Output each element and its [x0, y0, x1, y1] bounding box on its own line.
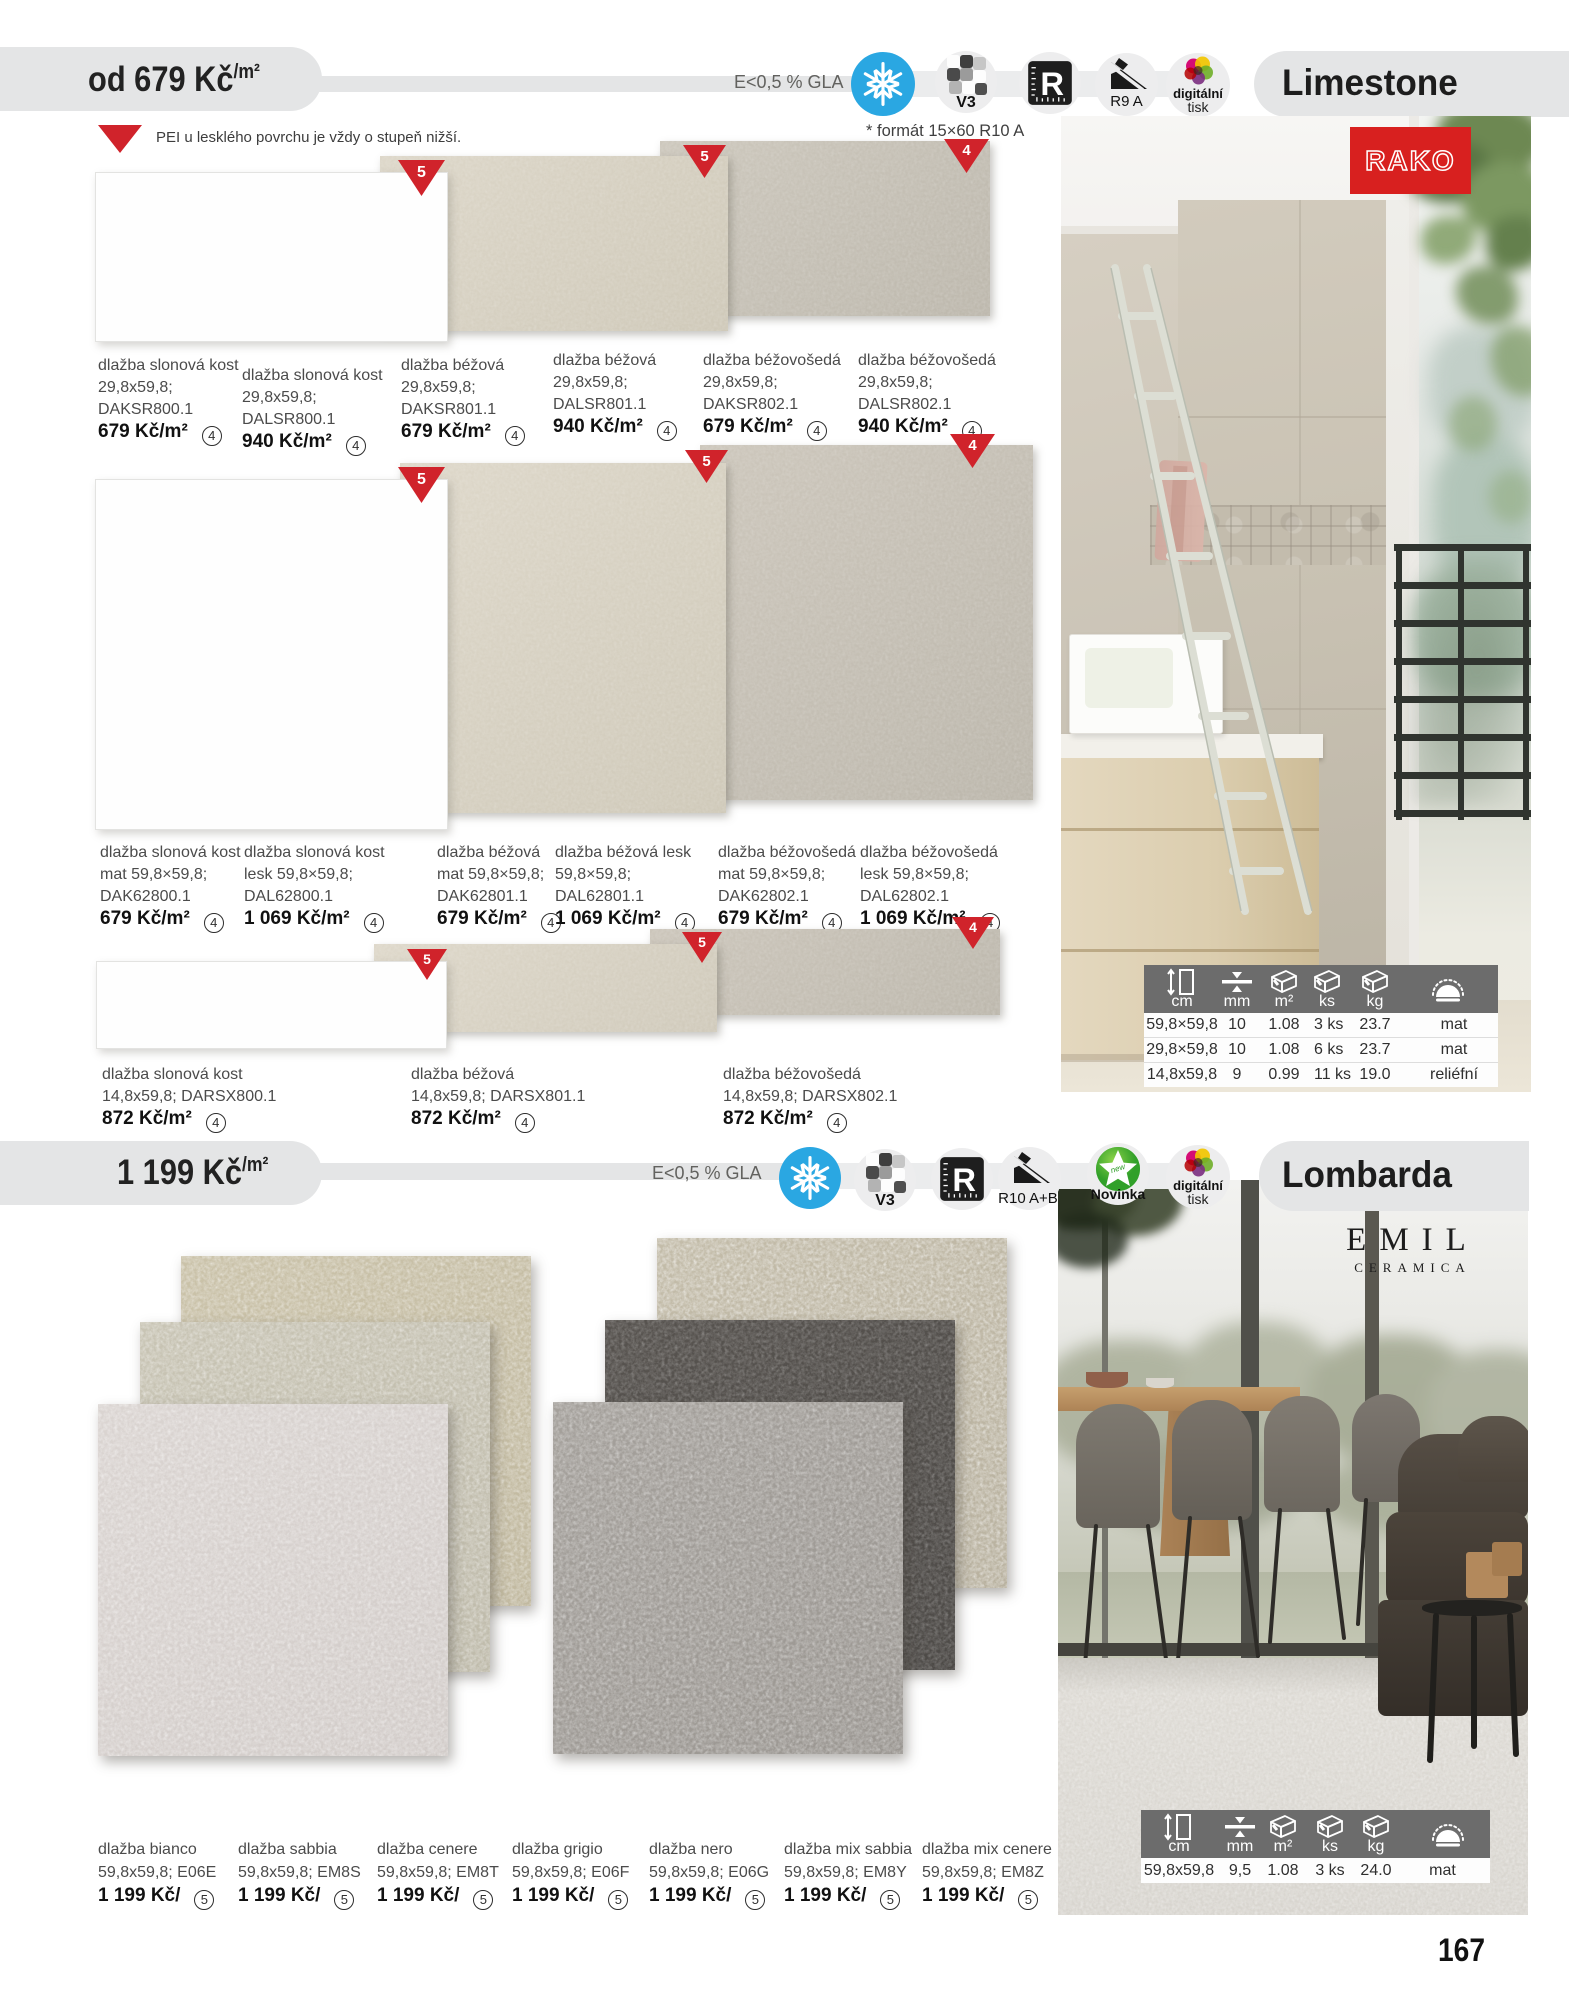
svg-text:4: 4 — [969, 919, 977, 935]
svg-text:5: 5 — [698, 934, 706, 950]
svg-text:5: 5 — [423, 951, 431, 967]
svg-text:R: R — [1040, 65, 1064, 102]
svg-text:5: 5 — [702, 453, 710, 470]
svg-text:5: 5 — [417, 471, 426, 488]
svg-text:4: 4 — [962, 142, 971, 159]
svg-text:R: R — [952, 1161, 976, 1198]
svg-text:5: 5 — [700, 148, 708, 165]
svg-text:4: 4 — [968, 437, 977, 454]
svg-text:5: 5 — [417, 164, 426, 181]
